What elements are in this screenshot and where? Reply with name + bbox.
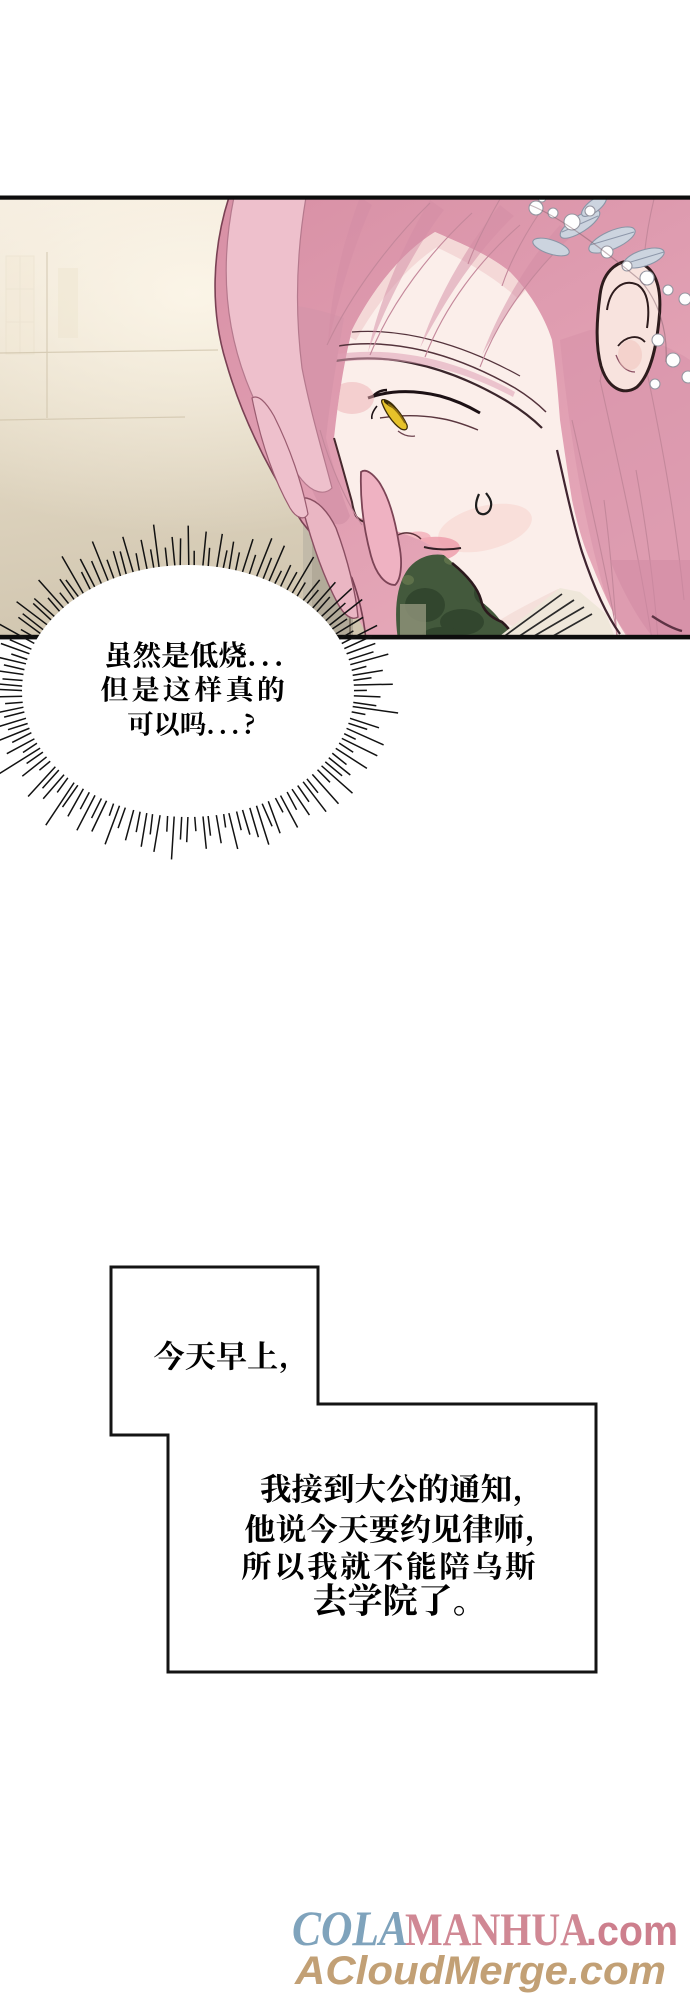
svg-text:.com: .com — [586, 1907, 678, 1954]
svg-text:COLA: COLA — [292, 1900, 408, 1956]
svg-text:ACloudMerge.com: ACloudMerge.com — [294, 1949, 666, 1993]
